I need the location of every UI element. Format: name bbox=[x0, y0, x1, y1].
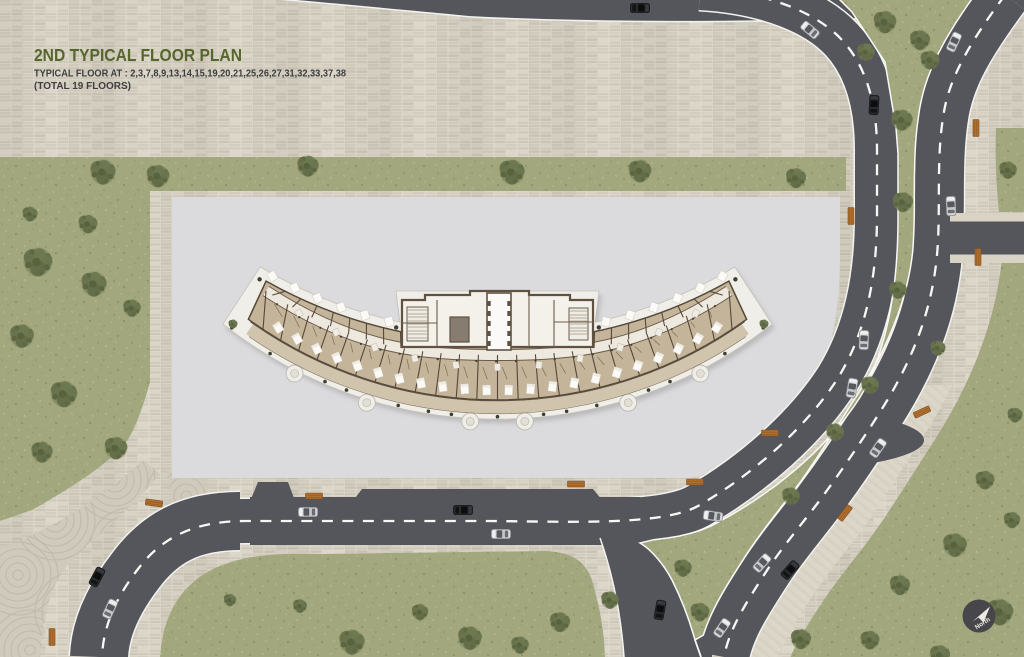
svg-text:2ND TYPICAL FLOOR PLAN: 2ND TYPICAL FLOOR PLAN bbox=[34, 45, 242, 65]
svg-text:TYPICAL FLOOR AT : 2,3,7,8,9,1: TYPICAL FLOOR AT : 2,3,7,8,9,13,14,15,19… bbox=[34, 69, 346, 80]
svg-text:(TOTAL 19 FLOORS): (TOTAL 19 FLOORS) bbox=[34, 81, 131, 92]
